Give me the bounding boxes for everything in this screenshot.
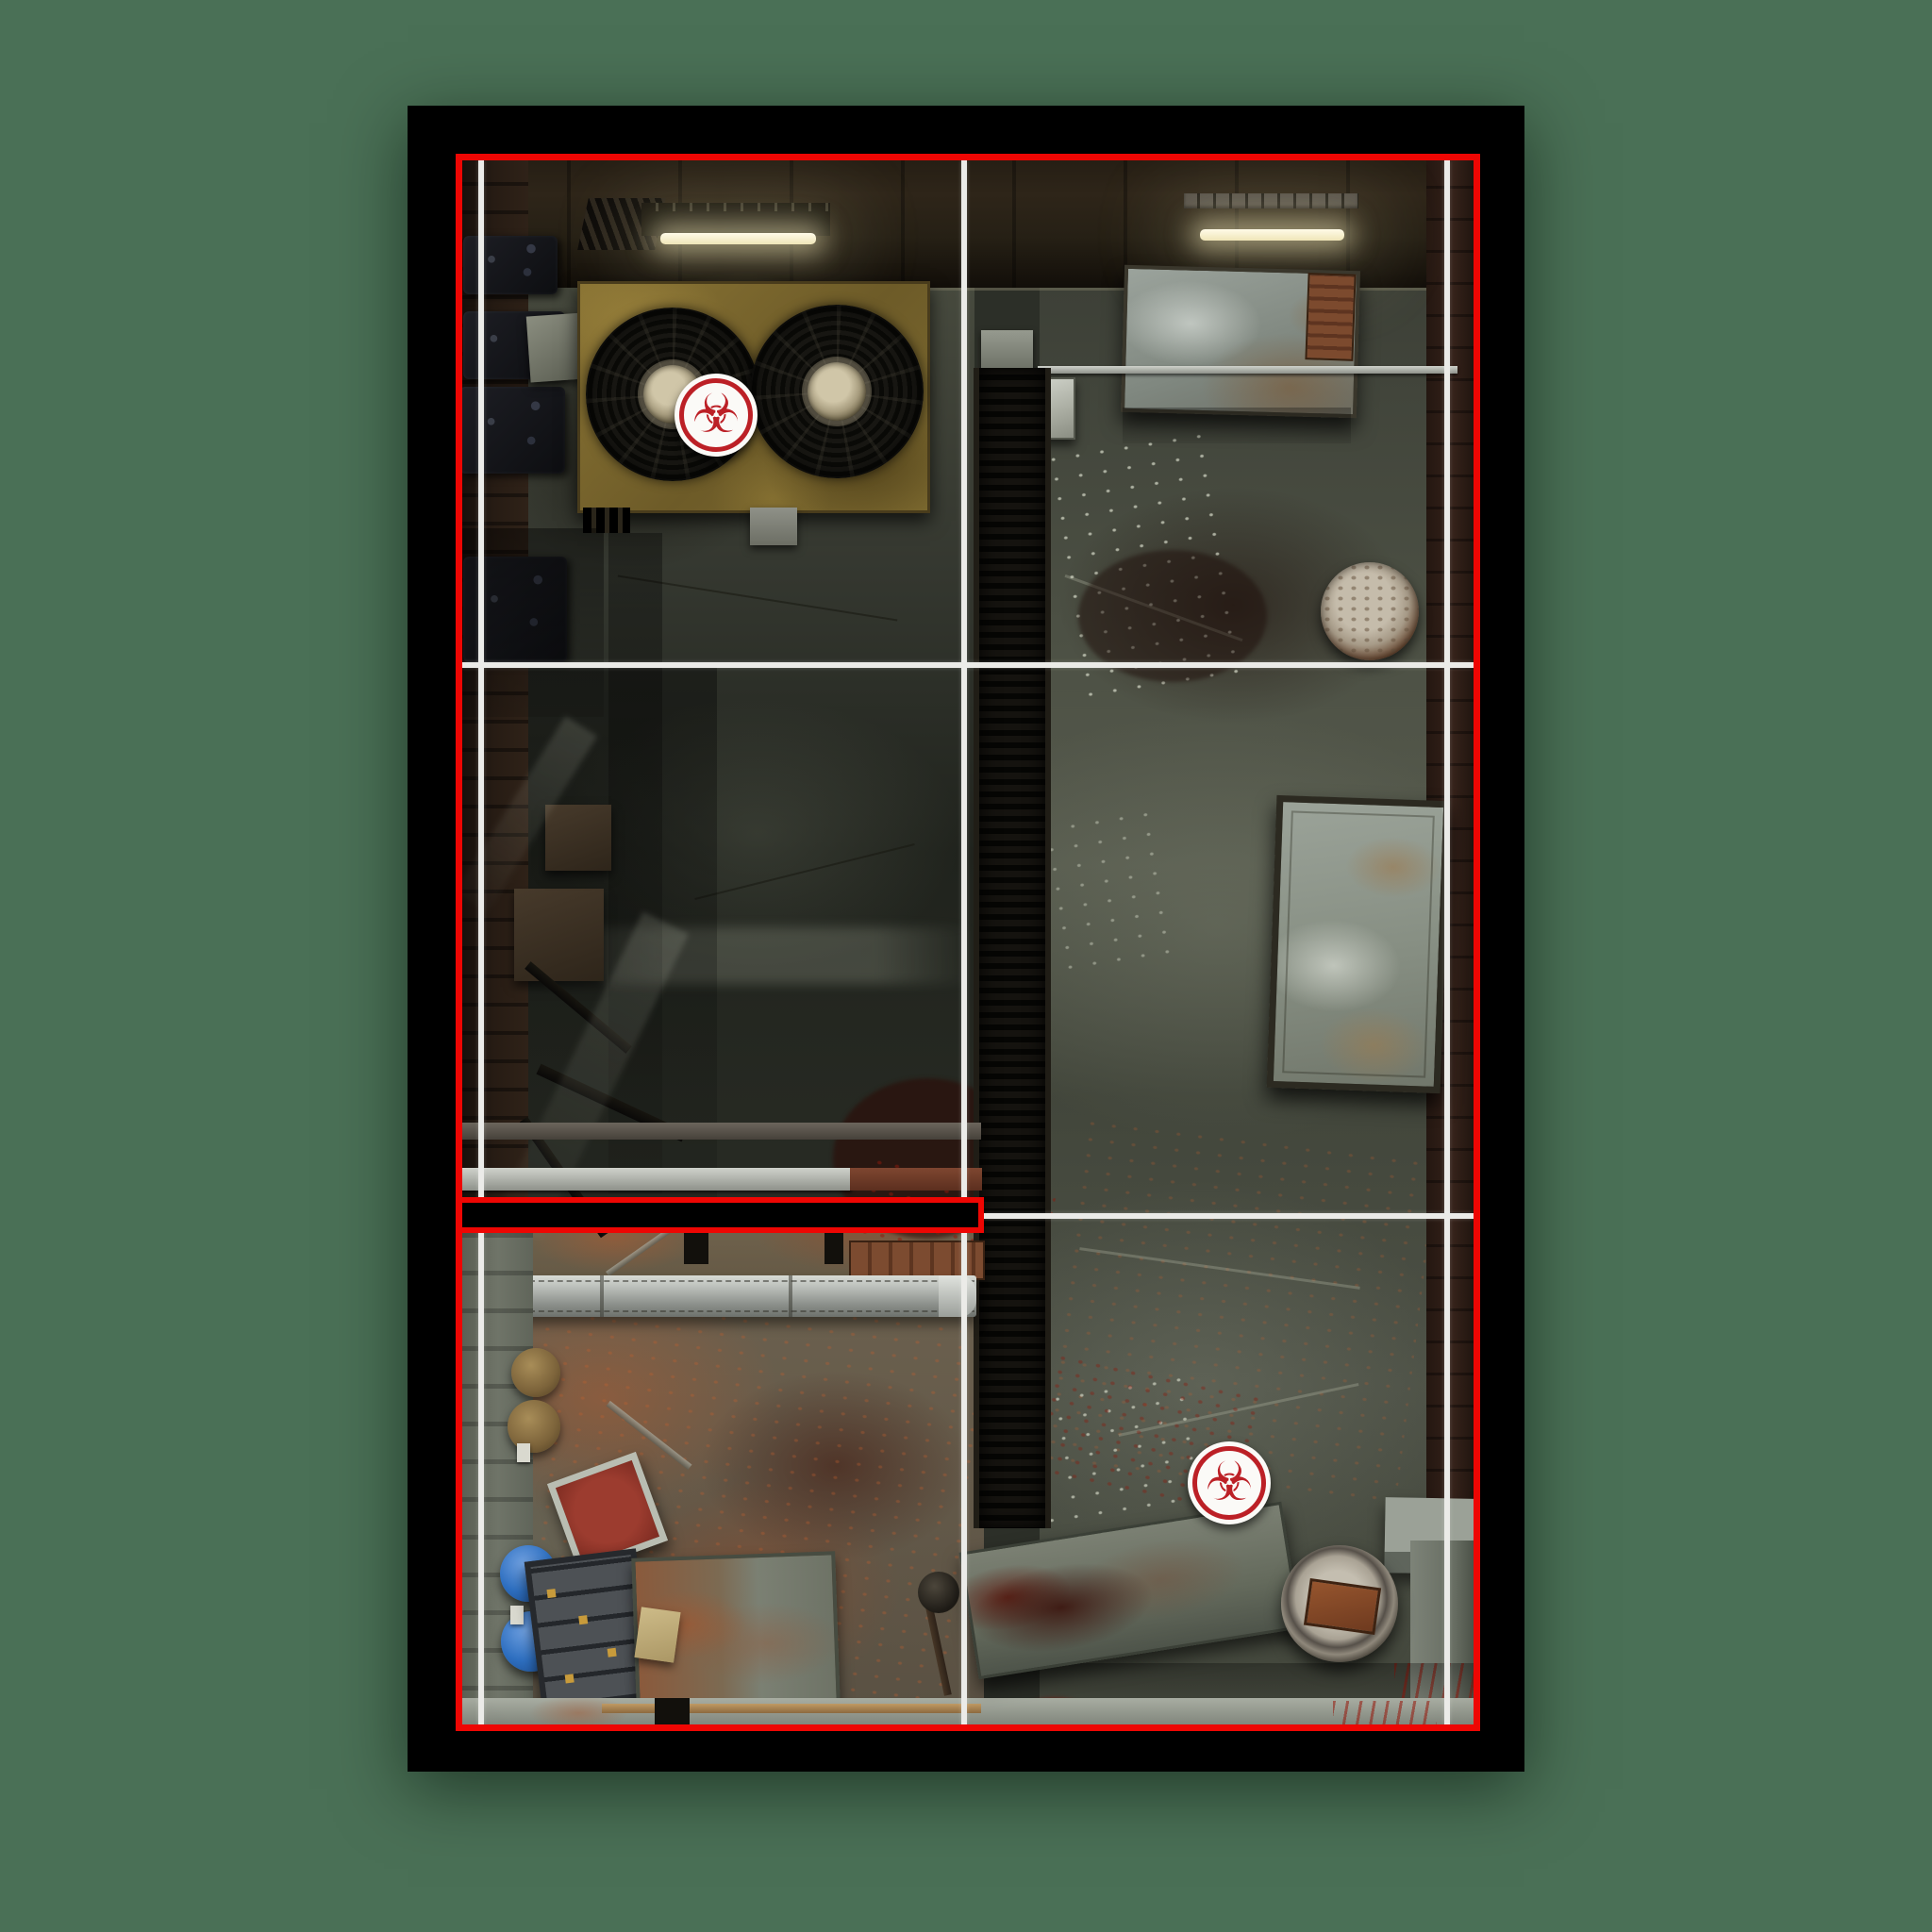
biohazard-icon: ☣ <box>691 388 740 441</box>
map-photo: ☣☣ <box>456 154 1480 1731</box>
room-divider-slot <box>456 1197 984 1233</box>
zone-lower-room-sw[interactable] <box>462 1233 984 1724</box>
screenshot-stage: ☣☣ <box>0 0 1932 1932</box>
biohazard-token-1[interactable]: ☣ <box>675 374 758 457</box>
grid-h-lower <box>984 1213 1474 1219</box>
biohazard-token-2[interactable]: ☣ <box>1188 1441 1271 1524</box>
grid-v-right <box>1444 160 1450 1724</box>
map-tile-card: ☣☣ <box>408 106 1524 1772</box>
grid-v-left <box>478 160 484 1724</box>
grid-v-center <box>961 160 967 1724</box>
grid-h-upper <box>462 662 1474 668</box>
map-overlay: ☣☣ <box>456 154 1480 1731</box>
zone-upper-room-w[interactable] <box>462 665 964 1197</box>
zone-upper-room-ne[interactable] <box>964 160 1474 665</box>
biohazard-icon: ☣ <box>1205 1456 1253 1509</box>
zone-upper-room-e[interactable] <box>964 665 1474 1216</box>
